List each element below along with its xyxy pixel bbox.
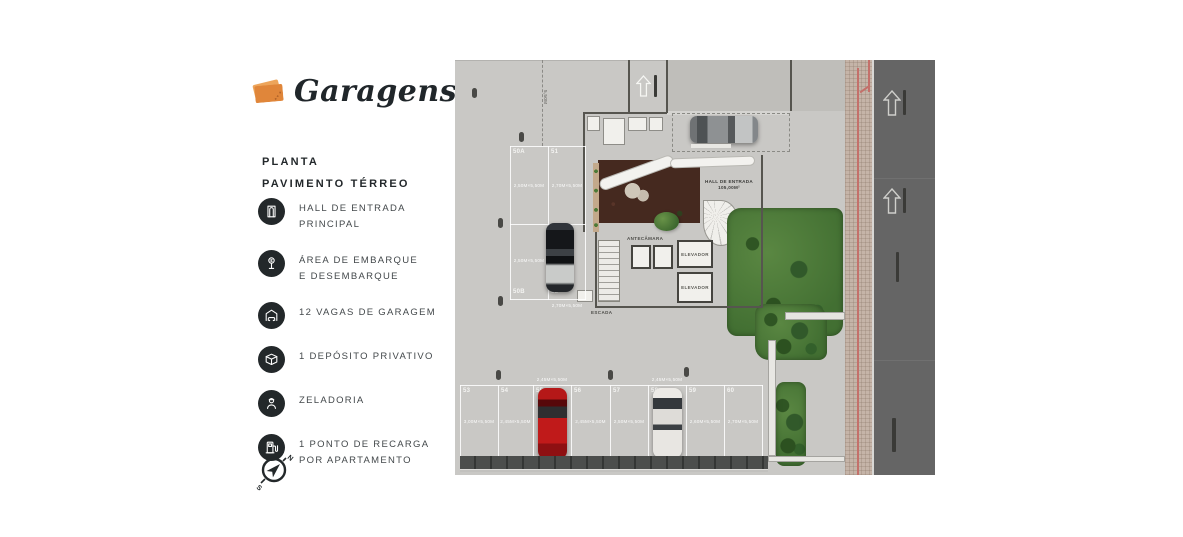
wall-line <box>595 232 597 308</box>
parking-spot-id: 56 <box>574 388 581 394</box>
street-road <box>874 60 935 475</box>
logo: Garagens <box>252 74 457 109</box>
parking-spot-dim: 2,70M×5,50M <box>548 183 586 188</box>
wall-line <box>666 60 668 113</box>
upper-building-block <box>667 60 845 111</box>
wall-line <box>761 155 763 308</box>
elevator: ELEVADOR <box>677 240 713 268</box>
parking-spot-dim: 2,45M×5,50M <box>648 377 686 382</box>
utility-room <box>628 117 647 131</box>
legend-item-hall: HALL DE ENTRADA PRINCIPAL <box>258 198 452 233</box>
legend-label: PRINCIPAL <box>299 217 406 233</box>
dropoff-label-strip <box>691 144 731 148</box>
car-red <box>538 388 567 459</box>
column-shadow <box>472 88 477 98</box>
road-direction-arrow-icon <box>883 90 901 116</box>
legend-label: 1 DEPÓSITO PRIVATIVO <box>299 349 434 365</box>
utility-room <box>587 116 600 131</box>
column-shadow <box>498 218 503 228</box>
column-shadow <box>684 367 689 377</box>
antechamber-label: ANTECÂMARA <box>627 236 663 241</box>
utility-room <box>603 118 625 145</box>
plan-title-line2: PAVIMENTO TÉRREO <box>262 173 410 195</box>
legend-item-deposito: 1 DEPÓSITO PRIVATIVO <box>258 346 452 373</box>
column-shadow <box>498 296 503 306</box>
elevator: ELEVADOR <box>677 272 713 303</box>
legend-label: ZELADORIA <box>299 393 365 409</box>
service-room <box>653 245 673 269</box>
reception-sofa <box>670 156 755 169</box>
sidebar: Garagens PLANTA PAVIMENTO TÉRREO HALL DE… <box>252 60 452 500</box>
curb <box>768 340 776 456</box>
parking-spot-dim: 2,70M×5,50M <box>548 303 586 308</box>
parking-spot-dim: 2,60M×5,50M <box>686 419 724 424</box>
boarding-sign-icon <box>258 250 285 277</box>
garage-car-icon <box>258 302 285 329</box>
driveway-label-bar <box>654 75 657 97</box>
stairwell <box>598 240 620 302</box>
parking-spot-dim: 2,50M×5,50M <box>610 419 648 424</box>
wall-line <box>628 60 630 113</box>
bottom-parking-row: 53 54 55 56 57 58 59 60 3,00M×5,50M 2,45… <box>460 385 763 458</box>
legend-label: HALL DE ENTRADA <box>299 201 406 217</box>
legend-item-vagas: 12 VAGAS DE GARAGEM <box>258 302 452 329</box>
compass-icon: N S <box>252 448 296 492</box>
wall-line <box>595 306 763 308</box>
wall-line <box>583 112 667 114</box>
legend-label: POR APARTAMENTO <box>299 453 429 469</box>
hall-label: HALL DE ENTRADA 105,00M² <box>703 179 755 191</box>
utility-room <box>649 117 663 131</box>
parking-spot-id: 54 <box>501 388 508 394</box>
caretaker-icon <box>258 390 285 417</box>
plan-top-edge <box>455 60 667 61</box>
column-shadow <box>519 132 524 142</box>
legend-label: 1 PONTO DE RECARGA <box>299 437 429 453</box>
legend-label: ÁREA DE EMBARQUE <box>299 253 418 269</box>
road-direction-arrow-icon <box>883 188 901 214</box>
bush <box>654 212 679 231</box>
parking-spot-id: 60 <box>727 388 734 394</box>
sidewalk <box>845 60 874 475</box>
sidewalk-red-line <box>857 68 859 475</box>
plan-title: PLANTA PAVIMENTO TÉRREO <box>262 151 410 195</box>
legend-item-zeladoria: ZELADORIA <box>258 390 452 417</box>
planter-strip <box>593 163 599 232</box>
plan-title-line1: PLANTA <box>262 151 410 173</box>
column-shadow <box>608 370 613 380</box>
parking-spot-dim: 3,00M×5,50M <box>460 419 498 424</box>
lobby-table <box>622 180 652 204</box>
service-room <box>631 245 651 269</box>
compass-south-label: S <box>255 484 263 492</box>
car-white <box>653 388 682 458</box>
parking-spot-id: 53 <box>463 388 470 394</box>
car-gray <box>690 116 758 143</box>
parking-spot-dim: 2,50M×5,50M <box>510 183 548 188</box>
garden-path <box>785 312 845 320</box>
hall-label-area: 105,00M² <box>703 185 755 191</box>
deposit-box-icon <box>258 346 285 373</box>
parking-spot-id: 50B <box>513 289 525 295</box>
logo-wordmark: Garagens <box>294 74 457 109</box>
parking-spot-id: 50A <box>513 149 525 155</box>
parking-spot-dim: 2,45M×5,50M <box>571 419 610 424</box>
street-label-bar <box>903 90 906 115</box>
legend-label: 12 VAGAS DE GARAGEM <box>299 305 436 321</box>
legend-label: E DESEMBARQUE <box>299 269 418 285</box>
parking-spot-dim: 2,45M×5,50M <box>533 377 571 382</box>
legend: HALL DE ENTRADA PRINCIPAL ÁREA DE EMBARQ… <box>258 198 452 486</box>
street-label-bar <box>896 252 899 282</box>
floor-plan: 5,50M HALL DE ENTRADA 105,00M² ESCADA AN… <box>455 60 935 475</box>
parking-spot-id: 57 <box>613 388 620 394</box>
logo-cards-icon <box>252 79 284 105</box>
drainage-grate <box>460 456 768 469</box>
compass-north-label: N <box>286 454 294 463</box>
logo-card-front <box>254 83 283 102</box>
garden-area <box>776 382 806 466</box>
parking-spot-dim: 2,70M×5,50M <box>724 419 762 424</box>
driveway-arrow-icon <box>636 72 651 100</box>
stairs-label: ESCADA <box>591 310 612 315</box>
street-label-bar <box>903 188 906 213</box>
setback-dimension: 5,50M <box>543 90 548 104</box>
parking-spot-dim: 2,50M×5,50M <box>510 258 548 263</box>
parking-spot-dim: 2,45M×5,50M <box>498 419 533 424</box>
column-shadow <box>496 370 501 380</box>
street-label-bar <box>892 418 896 452</box>
parking-spot-id: 59 <box>689 388 696 394</box>
wall-line <box>790 60 792 111</box>
entrance-door-icon <box>258 198 285 225</box>
parking-spot-id: 51 <box>551 149 558 155</box>
car-black <box>546 223 574 292</box>
curb <box>768 456 845 462</box>
legend-item-embarque: ÁREA DE EMBARQUE E DESEMBARQUE <box>258 250 452 285</box>
